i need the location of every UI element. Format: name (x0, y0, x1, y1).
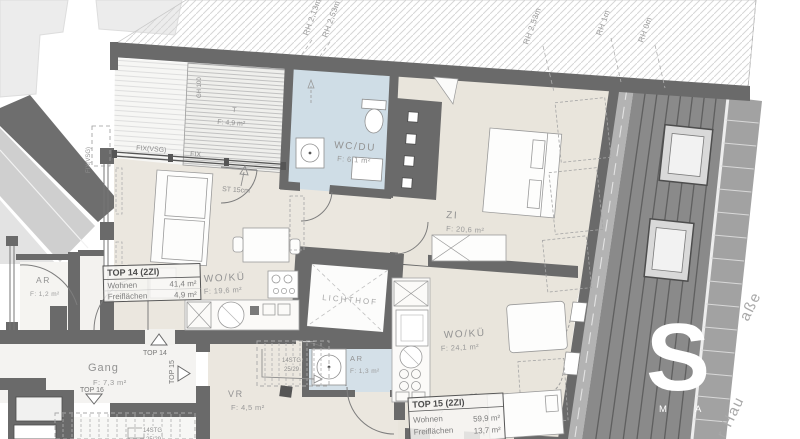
ar-top15-top-wall (302, 342, 400, 349)
glass-height-label: GH 100 (197, 77, 203, 98)
lift-shaft (16, 397, 62, 421)
top14-row-value: 41,4 m² (169, 279, 197, 289)
ar-top14-right-wall (68, 252, 80, 332)
chair (290, 239, 300, 254)
stairs-lower-steps-label: 14STG (143, 428, 162, 434)
neighbor-building-shape (0, 0, 68, 97)
top15-row-value: 59,9 m² (473, 413, 501, 423)
svg-text:FIX(VSG): FIX(VSG) (86, 147, 92, 173)
fix-label: FIX (190, 151, 202, 159)
watermark-letter: S (646, 304, 710, 411)
top15-row-label: Wohnen (413, 414, 443, 425)
right-wall-window (563, 352, 580, 375)
room-vr-name: VR (228, 389, 244, 399)
top14-row-label: Wohnen (107, 281, 137, 291)
entrance-label-top16: TOP 16 (80, 387, 104, 394)
lift-shaft (14, 425, 56, 439)
entrance-label-top15-group: TOP 15 (169, 360, 176, 384)
stair-newel (279, 385, 292, 398)
niche-top-wall (78, 250, 104, 256)
gang-wall-stub (50, 306, 67, 332)
left-wall-segment (100, 148, 114, 164)
apartment-box-top15: TOP 15 (2ZI) Wohnen 59,9 m² Freiflächen … (408, 393, 505, 439)
room-ar15-area: F: 1,3 m² (350, 368, 380, 375)
left-facade-stub (6, 322, 18, 332)
ar-top14-top-wall (16, 254, 68, 260)
watermark-subtext: M A (659, 404, 714, 415)
stairs-upper-steps-label: 14STG (282, 358, 301, 364)
top16-wall (110, 403, 208, 417)
skylight-window (659, 125, 713, 186)
room-woku15-name: WO/KÜ (444, 327, 486, 341)
entrance-label-top14: TOP 14 (143, 350, 167, 357)
apartment-box-top14: TOP 14 (2ZI) Wohnen 41,4 m² Freiflächen … (103, 263, 201, 302)
bottom-left-wall (0, 378, 46, 390)
left-wall-segment (100, 300, 114, 334)
gang-right-wall-a (196, 330, 210, 352)
entrance-label-top15: TOP 15 (169, 360, 176, 384)
room-ar14-area: F: 1,2 m² (30, 291, 60, 298)
floor-plan-page: 14STG 25/29 14STG 25/29 T F: 4,9 m² GH 1… (0, 0, 800, 439)
top14-title: TOP 14 (2ZI) (107, 267, 159, 278)
left-facade-stub (6, 236, 18, 246)
stairs-upper-ratio-label: 25/29 (284, 367, 300, 373)
dining-table-top14 (243, 228, 289, 262)
watermark: S M A (646, 304, 714, 415)
top14-row-value: 4,9 m² (174, 290, 197, 300)
sofa-top14 (151, 170, 213, 266)
chair (233, 237, 243, 252)
room-vr-area: F: 4,5 m² (231, 403, 265, 412)
svg-text:GH 100: GH 100 (197, 77, 203, 98)
room-woku14-name: WO/KÜ (204, 271, 246, 285)
skylight-window (644, 219, 694, 281)
fix-vsg-left-label: FIX(VSG) (86, 147, 92, 173)
terrace-deck (114, 58, 292, 173)
room-gang-name: Gang (88, 362, 119, 374)
wc-bottom-wall-a (280, 181, 300, 191)
terrace-left-wall-stub (110, 42, 118, 70)
right-wall-window (570, 302, 587, 322)
left-wall-segment (100, 222, 114, 240)
room-ar14-name: AR (36, 275, 51, 285)
room-zi-name: ZI (446, 210, 459, 222)
floorplan-svg: 14STG 25/29 14STG 25/29 T F: 4,9 m² GH 1… (0, 0, 800, 439)
top15-row-value: 13,7 m² (473, 425, 501, 435)
kitchen-top15 (392, 278, 430, 402)
room-gang-area: F: 7,3 m² (93, 378, 127, 387)
ar-top15-left-wall (302, 342, 309, 397)
top14-row-label: Freiflächen (108, 291, 148, 301)
room-ar15-name: AR (350, 354, 364, 363)
